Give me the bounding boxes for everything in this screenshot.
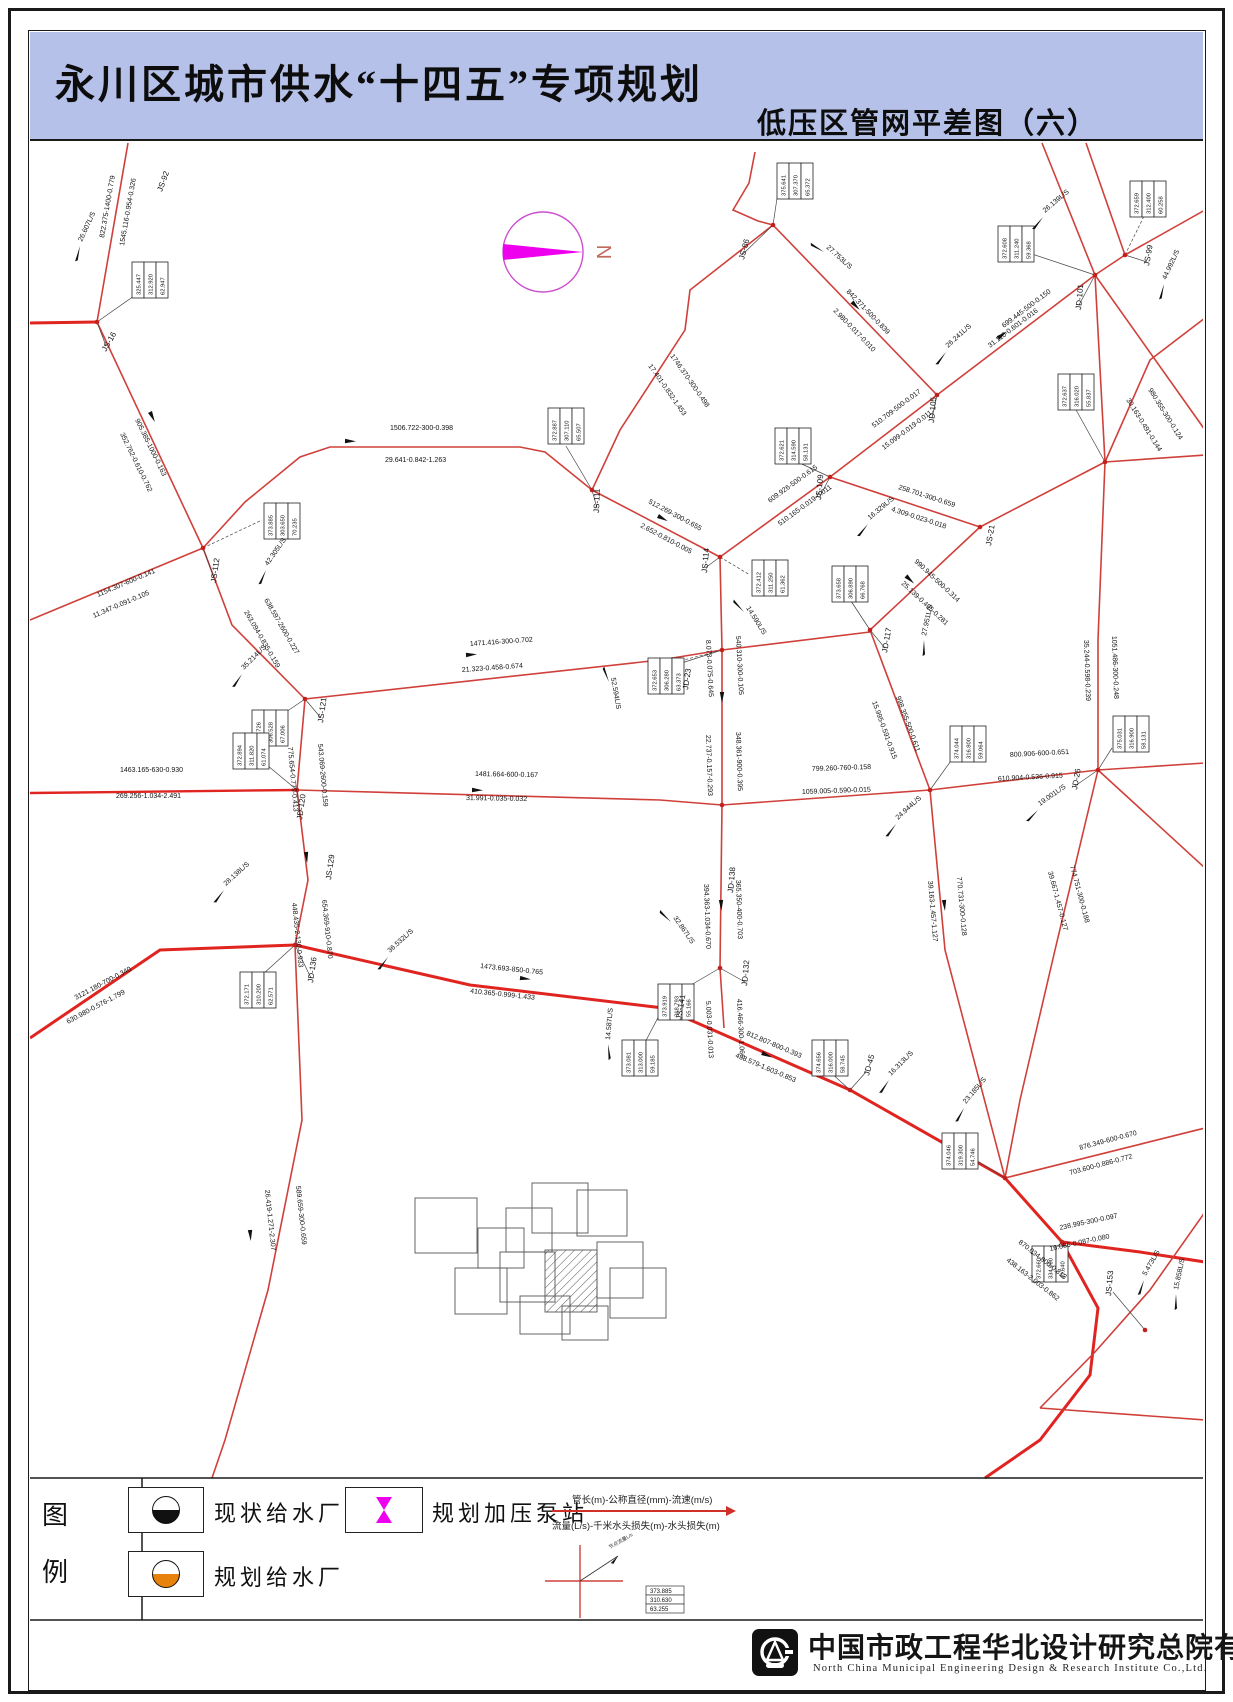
pipe-legend-arrowhead	[726, 1506, 736, 1516]
company-name-cn: 中国市政工程华北设计研究总院有限公司	[808, 1626, 1233, 1666]
company-name-en: North China Municipal Engineering Design…	[813, 1663, 1208, 1674]
pipe-legend-bottom-text: 流量(L/s)-千米水头损失(m)-水头损失(m)	[552, 1518, 720, 1532]
legend-symbol-existing-plant	[128, 1487, 204, 1533]
pipe-legend-top-text: 管长(m)-公称直径(mm)-流速(m/s)	[572, 1492, 712, 1506]
planned-plant-icon	[152, 1560, 180, 1588]
legend-label-planned-plant: 规划给水厂	[214, 1560, 344, 1592]
page-title: 永川区城市供水“十四五”专项规划	[55, 52, 703, 110]
legend-panel-char-2: 例	[42, 1552, 68, 1589]
legend-symbol-pump-station	[345, 1487, 423, 1533]
pump-station-icon	[374, 1496, 394, 1524]
existing-plant-icon	[152, 1496, 180, 1524]
legend-panel-char-1: 图	[42, 1495, 68, 1532]
pipe-legend-line	[552, 1510, 728, 1512]
page-subtitle: 低压区管网平差图（六）	[757, 100, 1098, 142]
inner-border	[28, 30, 1206, 1691]
company-logo	[752, 1629, 798, 1681]
legend-symbol-planned-plant	[128, 1551, 204, 1597]
drawing-sheet: 永川区城市供水“十四五”专项规划 低压区管网平差图（六） 325.447312.…	[0, 0, 1233, 1702]
legend-label-existing-plant: 现状给水厂	[214, 1496, 344, 1528]
